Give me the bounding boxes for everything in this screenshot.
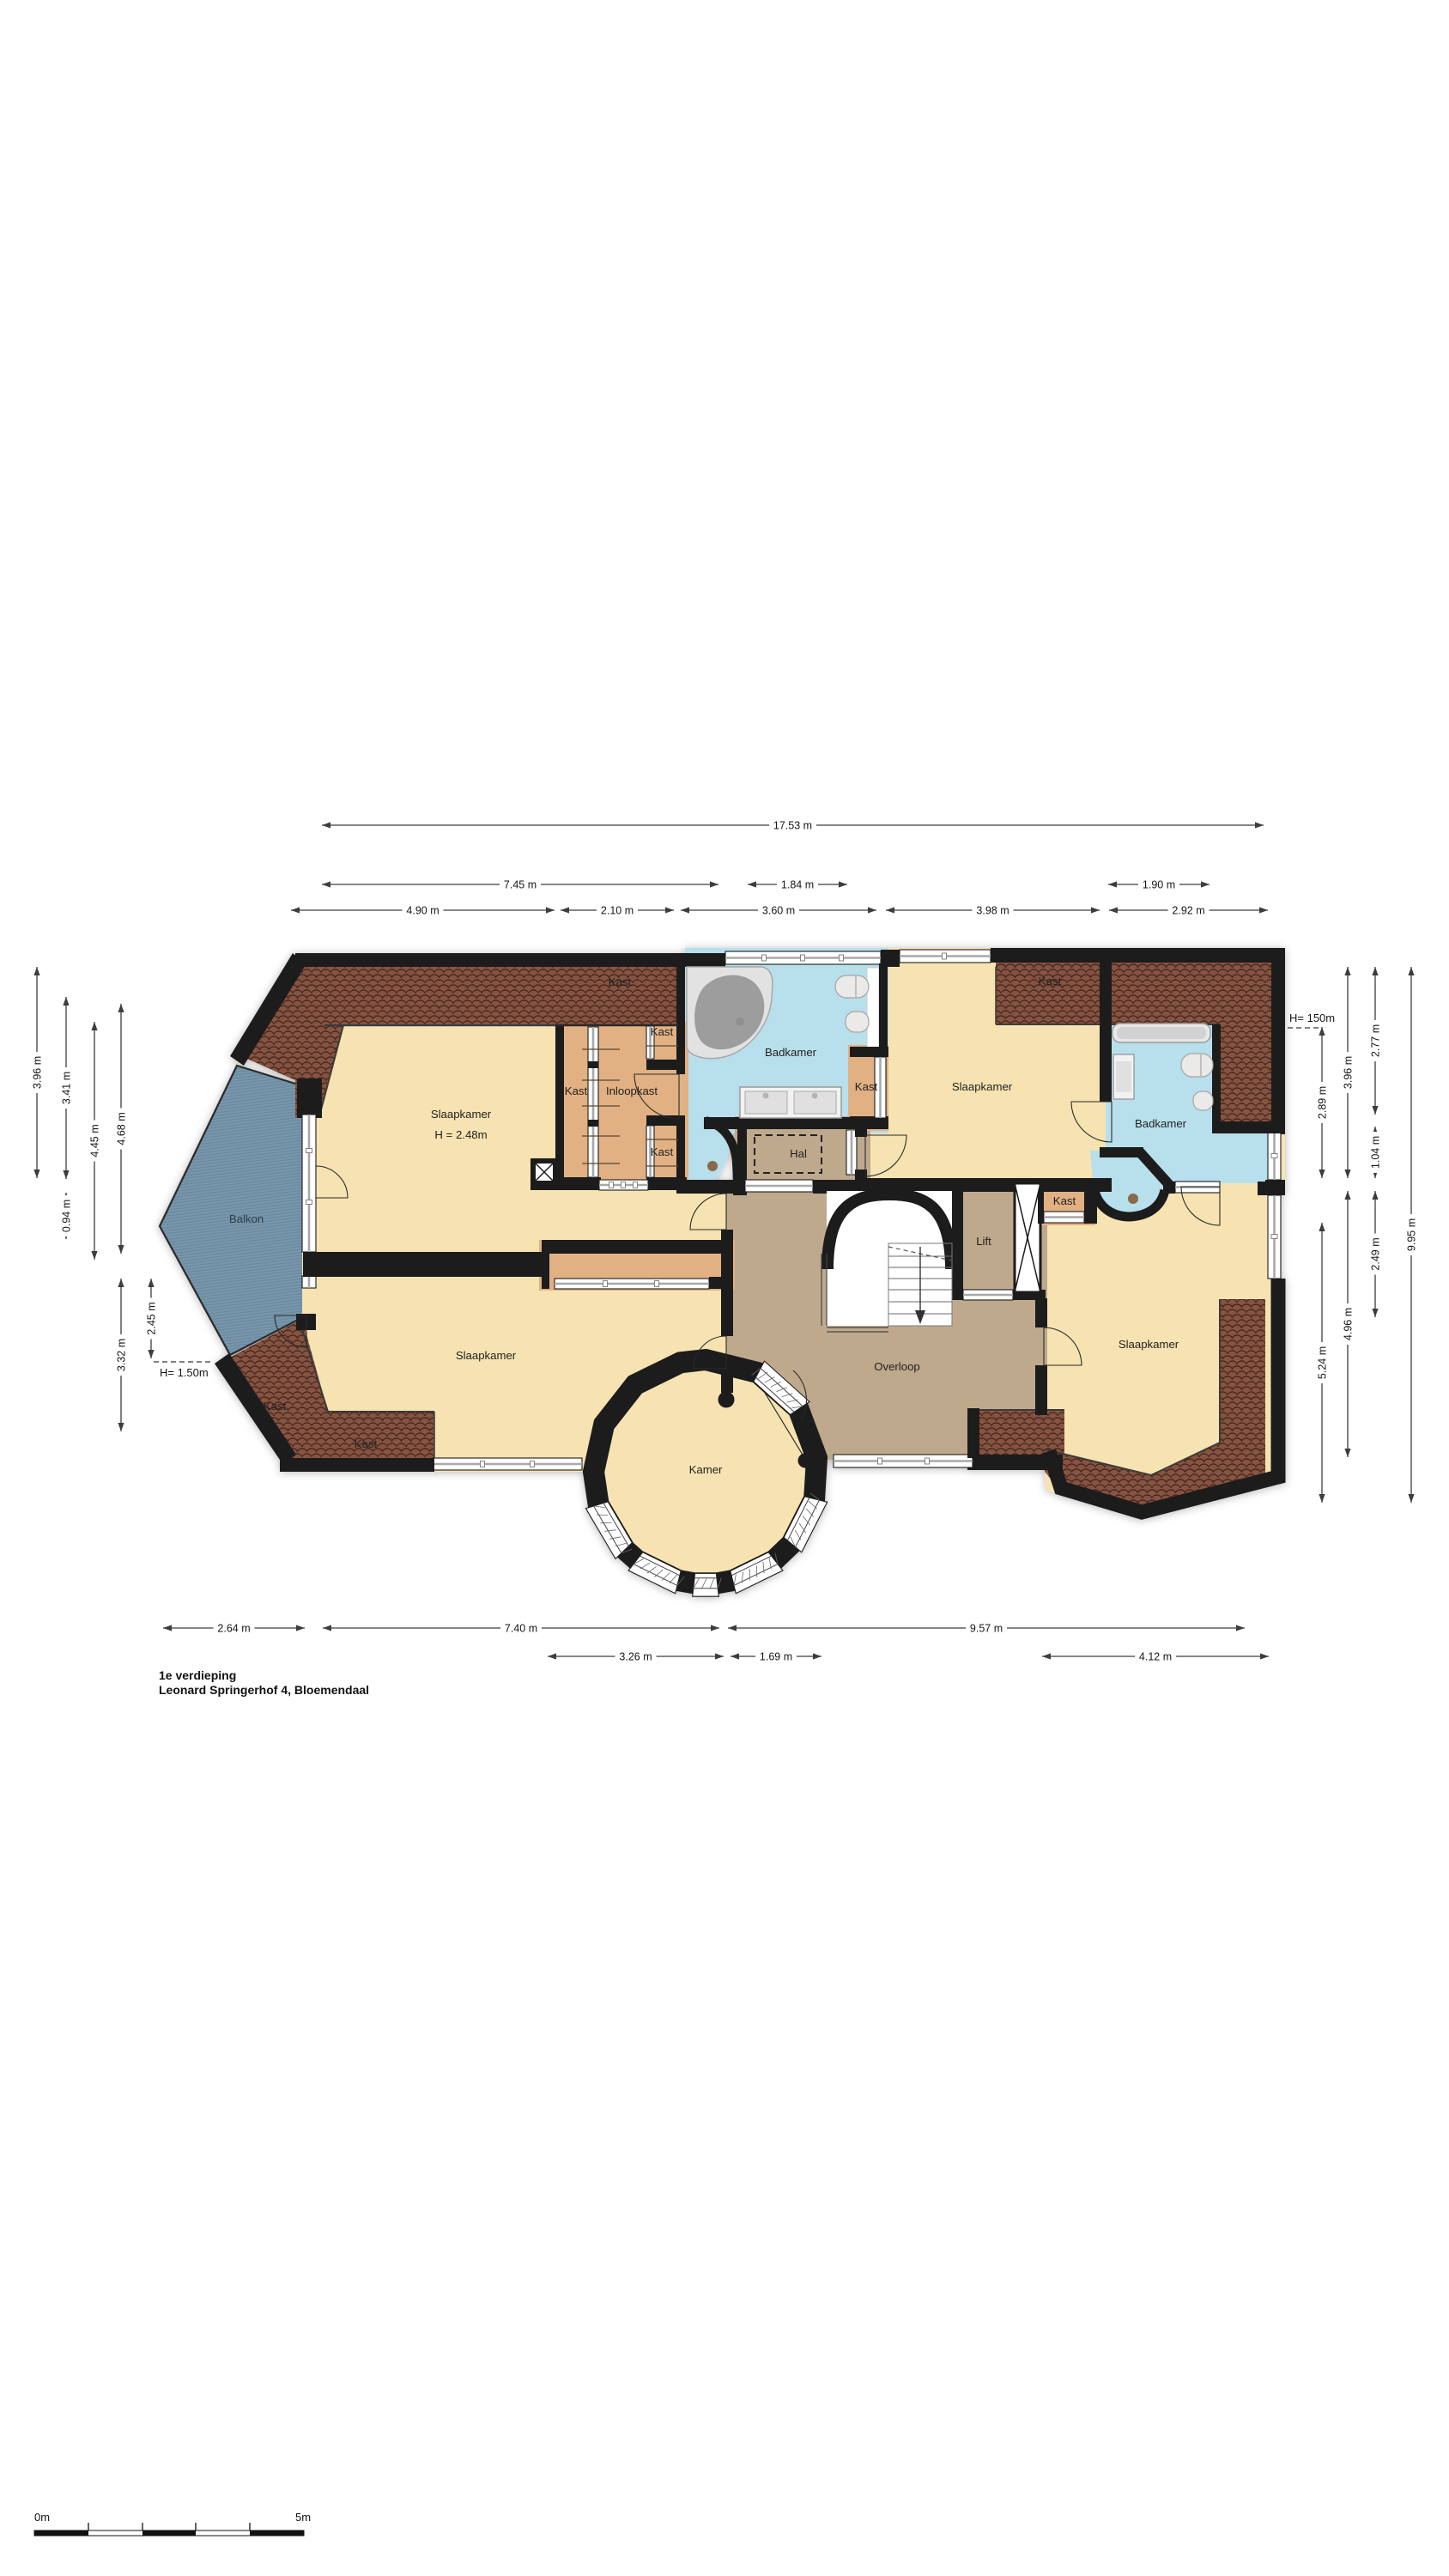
svg-text:Kast: Kast (651, 1145, 674, 1158)
svg-text:0m: 0m (34, 2511, 50, 2524)
svg-text:4.12 m: 4.12 m (1139, 1651, 1172, 1663)
svg-text:Kast: Kast (1039, 975, 1062, 987)
svg-text:9.95 m: 9.95 m (1406, 1218, 1418, 1251)
svg-text:Kast: Kast (355, 1437, 378, 1450)
svg-text:5.24 m: 5.24 m (1317, 1346, 1329, 1379)
svg-text:Badkamer: Badkamer (1135, 1117, 1187, 1130)
svg-text:1.84 m: 1.84 m (781, 879, 814, 891)
svg-text:Kast: Kast (609, 975, 632, 988)
svg-text:4.96 m: 4.96 m (1343, 1308, 1355, 1340)
svg-text:Leonard Springerhof 4, Bloemen: Leonard Springerhof 4, Bloemendaal (159, 1683, 369, 1697)
svg-text:3.41 m: 3.41 m (61, 1072, 73, 1104)
svg-text:1.90 m: 1.90 m (1143, 879, 1175, 891)
svg-text:2.10 m: 2.10 m (601, 905, 634, 917)
svg-text:17.53 m: 17.53 m (773, 820, 812, 832)
svg-text:Slaapkamer: Slaapkamer (1119, 1338, 1179, 1351)
svg-text:Badkamer: Badkamer (765, 1046, 817, 1059)
svg-text:2.45 m: 2.45 m (146, 1302, 158, 1334)
svg-text:Kast: Kast (264, 1400, 287, 1413)
svg-text:Kamer: Kamer (689, 1463, 723, 1476)
svg-text:H= 150m: H= 150m (1289, 1012, 1335, 1024)
svg-text:Balkon: Balkon (229, 1212, 264, 1225)
svg-text:4.90 m: 4.90 m (406, 905, 439, 917)
svg-text:5m: 5m (295, 2511, 311, 2524)
svg-text:4.45 m: 4.45 m (89, 1124, 101, 1157)
svg-text:2.89 m: 2.89 m (1317, 1086, 1329, 1119)
svg-text:Slaapkamer: Slaapkamer (431, 1108, 492, 1121)
svg-text:Kast: Kast (651, 1025, 674, 1038)
svg-text:2.77 m: 2.77 m (1370, 1024, 1382, 1057)
svg-text:Kast: Kast (565, 1084, 588, 1097)
svg-text:2.49 m: 2.49 m (1370, 1237, 1382, 1270)
svg-text:9.57 m: 9.57 m (970, 1623, 1003, 1635)
svg-text:Kast: Kast (1053, 1194, 1076, 1207)
svg-text:1.69 m: 1.69 m (760, 1651, 792, 1663)
svg-text:Hal: Hal (790, 1147, 807, 1160)
svg-text:Kast: Kast (855, 1080, 878, 1093)
svg-text:3.96 m: 3.96 m (1343, 1056, 1355, 1089)
svg-text:4.68 m: 4.68 m (116, 1112, 128, 1145)
svg-text:7.40 m: 7.40 m (505, 1623, 537, 1635)
svg-text:Slaapkamer: Slaapkamer (456, 1349, 517, 1362)
svg-text:Slaapkamer: Slaapkamer (952, 1080, 1013, 1093)
svg-text:3.96 m: 3.96 m (32, 1056, 44, 1089)
svg-text:Overloop: Overloop (874, 1360, 920, 1373)
svg-text:1.04 m: 1.04 m (1370, 1136, 1382, 1169)
svg-text:3.98 m: 3.98 m (976, 905, 1009, 917)
svg-text:Inloopkast: Inloopkast (606, 1084, 658, 1097)
svg-text:2.64 m: 2.64 m (217, 1623, 250, 1635)
svg-text:H = 2.48m: H = 2.48m (434, 1128, 487, 1141)
svg-text:3.60 m: 3.60 m (762, 905, 795, 917)
svg-text:0.94 m: 0.94 m (61, 1200, 73, 1232)
svg-text:7.45 m: 7.45 m (504, 879, 537, 891)
svg-text:2.92 m: 2.92 m (1172, 905, 1204, 917)
svg-text:3.26 m: 3.26 m (619, 1651, 652, 1663)
svg-text:3.32 m: 3.32 m (116, 1339, 128, 1371)
svg-text:Lift: Lift (976, 1235, 991, 1248)
svg-text:1e verdieping: 1e verdieping (159, 1668, 236, 1682)
svg-text:H= 1.50m: H= 1.50m (160, 1366, 209, 1379)
